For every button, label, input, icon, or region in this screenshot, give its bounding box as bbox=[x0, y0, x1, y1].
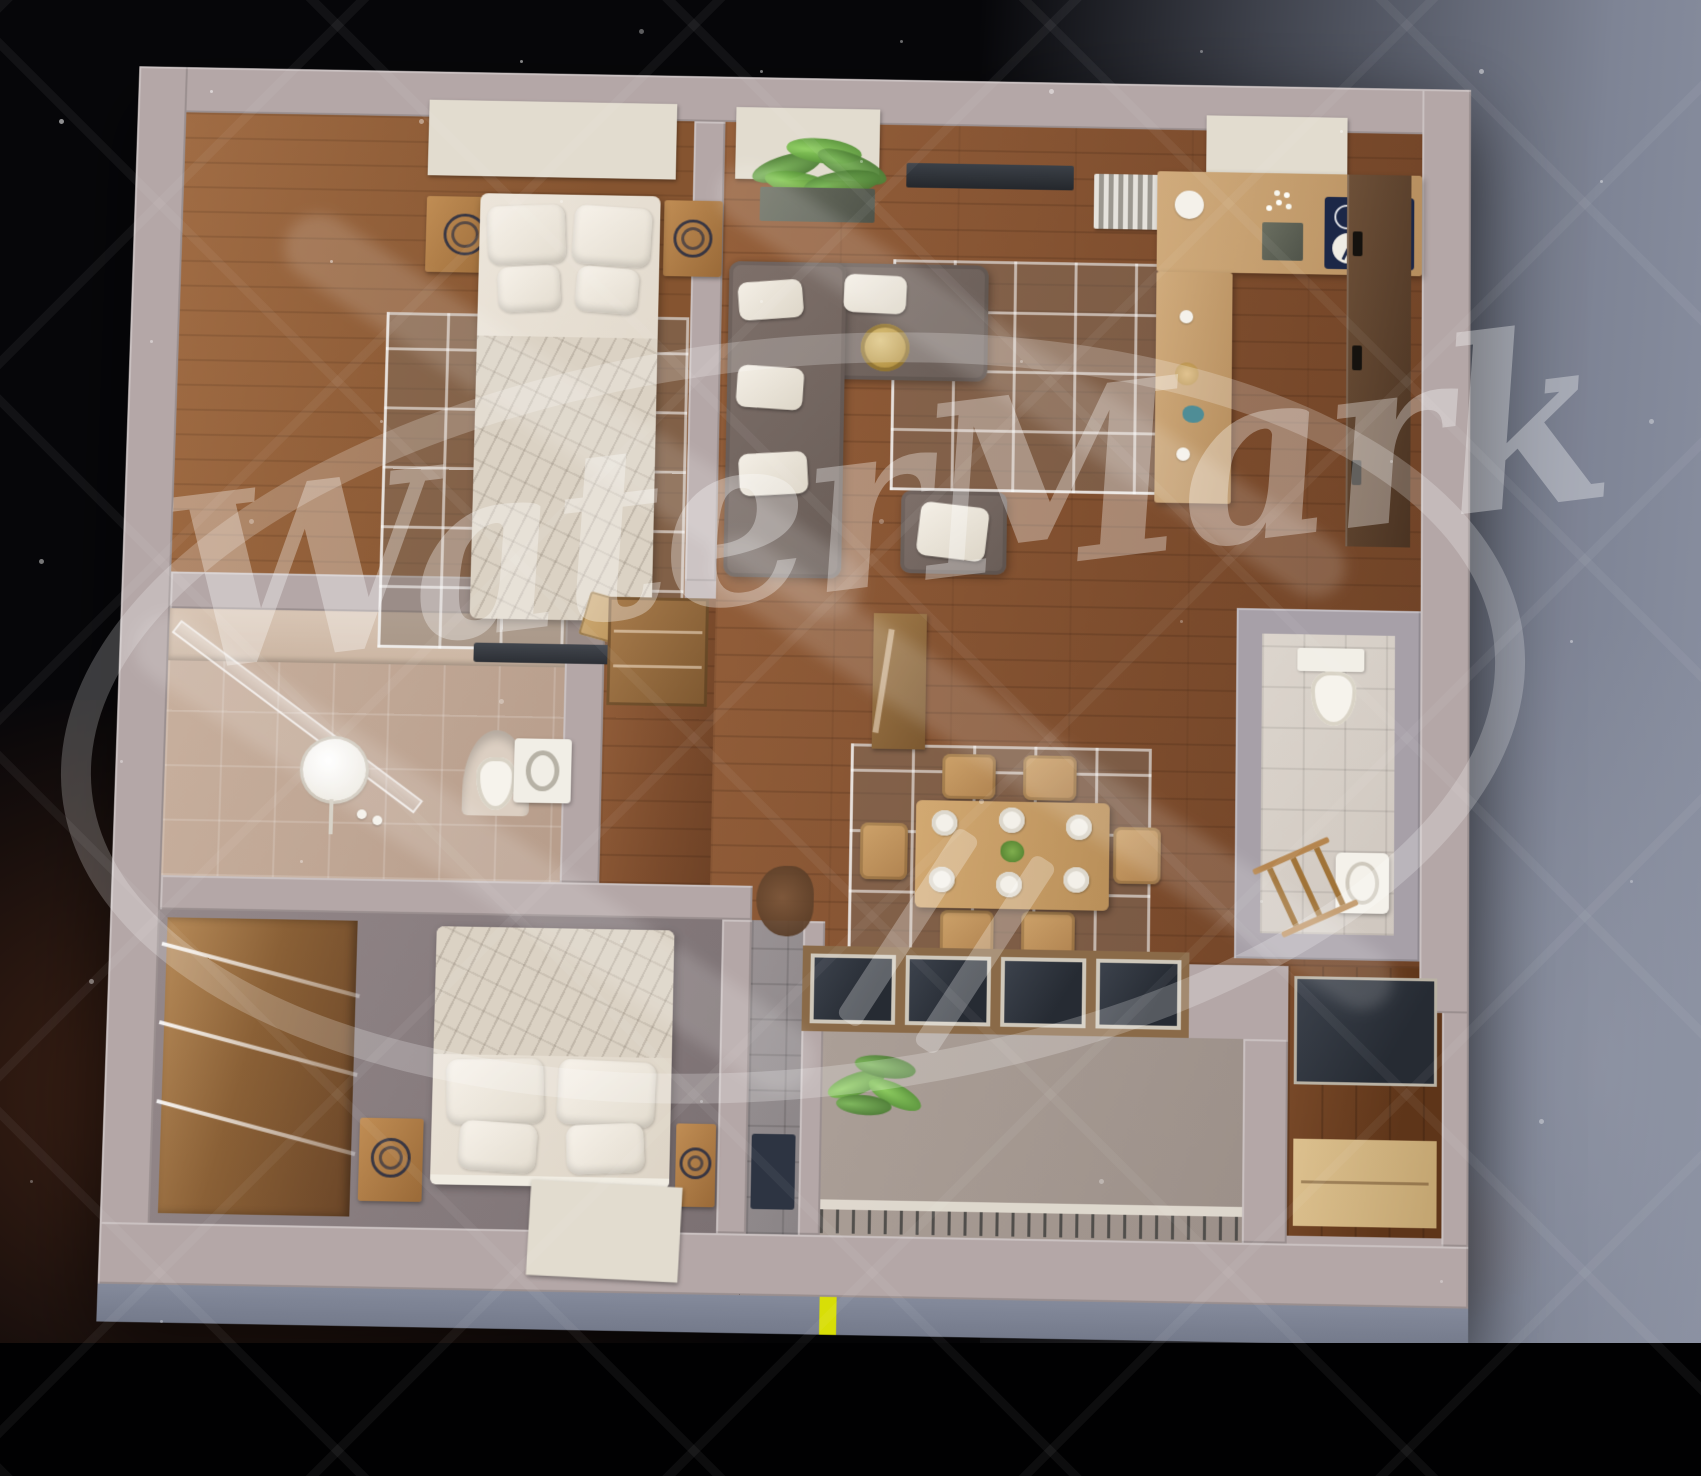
plate bbox=[932, 810, 958, 836]
dried-plant bbox=[756, 865, 815, 936]
washing-machine bbox=[513, 738, 572, 803]
dining-table bbox=[915, 800, 1110, 911]
wardrobe-rail bbox=[159, 1020, 358, 1077]
kitchen-tall-cabinets bbox=[1345, 174, 1411, 547]
cabinet-handle bbox=[1352, 345, 1362, 370]
sofa-cushion bbox=[737, 279, 804, 321]
dining-chair bbox=[1113, 827, 1161, 884]
wc-cistern bbox=[1297, 648, 1364, 672]
dining-chair bbox=[942, 754, 996, 800]
tulip-vase bbox=[1262, 222, 1303, 261]
sofa-cushion bbox=[738, 451, 809, 497]
plate bbox=[999, 807, 1025, 833]
tv-console bbox=[906, 163, 1074, 191]
bedroom2-wardrobe bbox=[158, 917, 358, 1216]
pillow bbox=[446, 1058, 544, 1125]
glazing-panel bbox=[1000, 957, 1086, 1028]
cushion bbox=[566, 1123, 645, 1175]
cabinet-handle bbox=[1352, 460, 1362, 485]
screenshot-stage: WaterMark bbox=[0, 0, 1701, 1476]
cushion bbox=[497, 264, 562, 313]
teal-kettle bbox=[1182, 405, 1204, 423]
ottoman-cushion bbox=[915, 501, 990, 563]
wooden-bowl bbox=[1175, 362, 1199, 385]
bedroom1-nightstand-right bbox=[663, 200, 723, 277]
balcony-glazing-band bbox=[801, 945, 1189, 1037]
green-centerpiece bbox=[1000, 840, 1024, 862]
plate bbox=[996, 872, 1022, 898]
sofa-cushion bbox=[843, 273, 907, 314]
plate bbox=[929, 867, 955, 893]
closet-shelf bbox=[614, 630, 703, 634]
ladder-rung bbox=[1267, 867, 1299, 927]
tulip-flowers bbox=[1266, 205, 1272, 211]
starfield-speckles bbox=[0, 0, 3, 3]
bench-seam bbox=[1301, 1180, 1429, 1185]
bedroom2-skylight-window bbox=[526, 1180, 683, 1283]
wc-cube bbox=[1234, 608, 1421, 962]
alarm-clock-icon bbox=[679, 1147, 712, 1179]
living-potted-palm bbox=[746, 130, 894, 225]
hall-open-closet bbox=[606, 597, 709, 707]
plate bbox=[1175, 190, 1204, 219]
bedroom1-desk bbox=[473, 643, 619, 665]
sofa-cushion bbox=[735, 364, 804, 410]
bedroom2-double-bed bbox=[430, 926, 675, 1189]
entry-door-mat bbox=[750, 1134, 795, 1210]
ladder-rung bbox=[1290, 857, 1322, 917]
bedroom1-double-bed bbox=[470, 193, 661, 621]
hall-console bbox=[872, 613, 927, 749]
wc-floor bbox=[1260, 634, 1395, 936]
kitchen-island bbox=[1154, 272, 1232, 504]
bottom-black-band bbox=[0, 1343, 1701, 1476]
dining-chair bbox=[1023, 755, 1077, 801]
wardrobe-rail bbox=[156, 1099, 356, 1156]
wall-bedroom2-vestibule bbox=[716, 920, 752, 1234]
glazing-panel bbox=[1095, 959, 1181, 1030]
planter-box bbox=[760, 187, 875, 223]
cabinet-handle bbox=[1353, 231, 1363, 256]
closet-shelf bbox=[613, 664, 702, 668]
pillow bbox=[571, 204, 653, 268]
console-mirror bbox=[872, 629, 894, 733]
glazing-panel bbox=[905, 955, 991, 1026]
pillow bbox=[487, 204, 567, 265]
plate bbox=[1063, 867, 1089, 893]
small-plate bbox=[1176, 447, 1190, 461]
wardrobe-rail bbox=[162, 942, 361, 999]
plate bbox=[1066, 814, 1092, 840]
facade-yellow-stripe bbox=[819, 1297, 837, 1335]
pillow bbox=[556, 1058, 657, 1128]
outer-wall-right bbox=[1419, 89, 1471, 1013]
blanket bbox=[470, 335, 658, 621]
bedroom2-nightstand-left bbox=[358, 1118, 424, 1202]
bedroom1-skylight-window bbox=[428, 100, 678, 180]
wc-toilet bbox=[1311, 671, 1357, 726]
wall-balcony-right bbox=[1242, 1039, 1288, 1244]
sketch-blanket bbox=[433, 926, 674, 1058]
dining-chair bbox=[860, 822, 908, 879]
cushion bbox=[574, 265, 640, 316]
alarm-clock-icon bbox=[673, 219, 713, 258]
balcony-potted-palm bbox=[825, 1043, 931, 1142]
glazing-panel bbox=[810, 953, 896, 1024]
apartment-floor-plan bbox=[96, 66, 1471, 1346]
wc-wooden-ladder bbox=[1249, 829, 1363, 946]
loggia-glass-wall bbox=[1294, 976, 1438, 1087]
cushion bbox=[457, 1119, 538, 1174]
alarm-clock-icon bbox=[370, 1138, 411, 1178]
small-plate bbox=[1179, 310, 1193, 324]
loggia-bench bbox=[1293, 1139, 1437, 1229]
